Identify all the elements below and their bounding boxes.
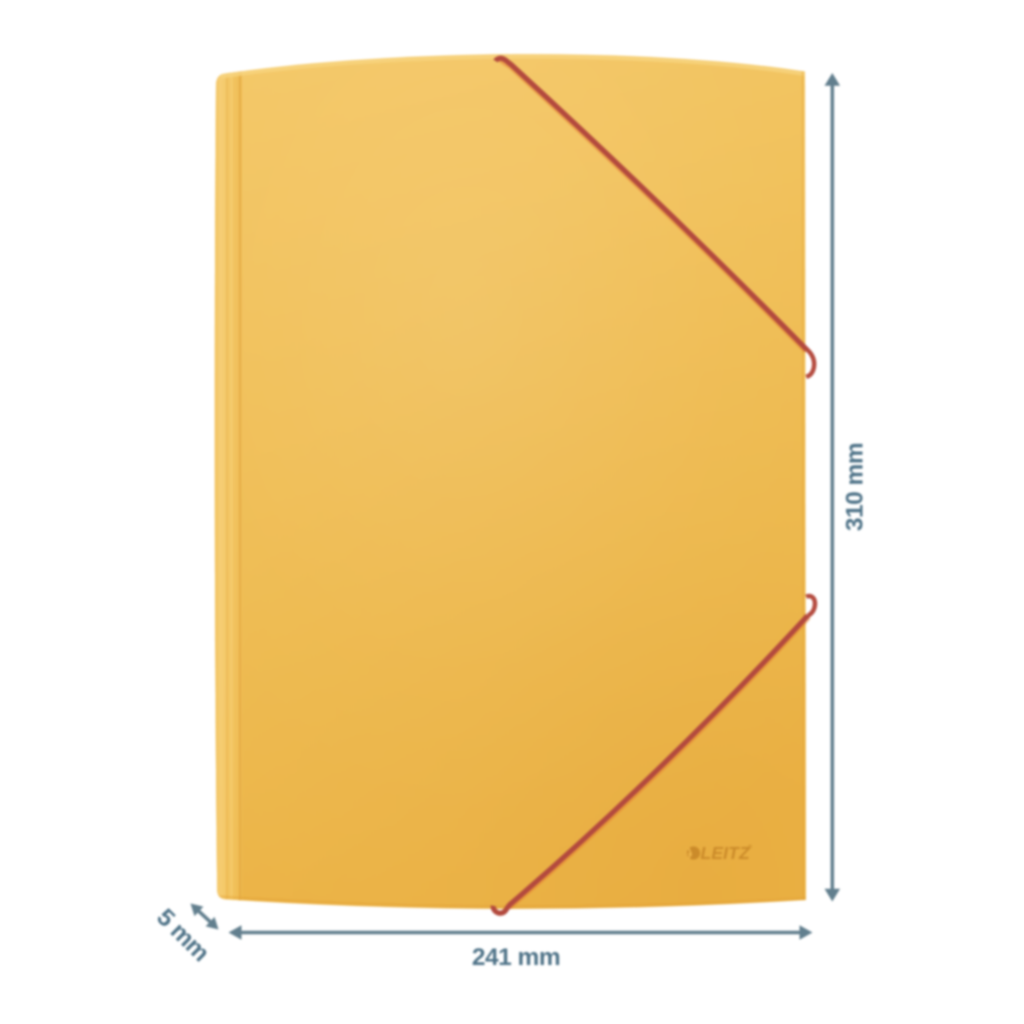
svg-text:241 mm: 241 mm [472,944,560,971]
svg-text:310 mm: 310 mm [842,443,869,531]
svg-text:LEITZ: LEITZ [701,843,751,863]
svg-text:®: ® [748,844,752,851]
svg-text:5 mm: 5 mm [151,904,214,967]
